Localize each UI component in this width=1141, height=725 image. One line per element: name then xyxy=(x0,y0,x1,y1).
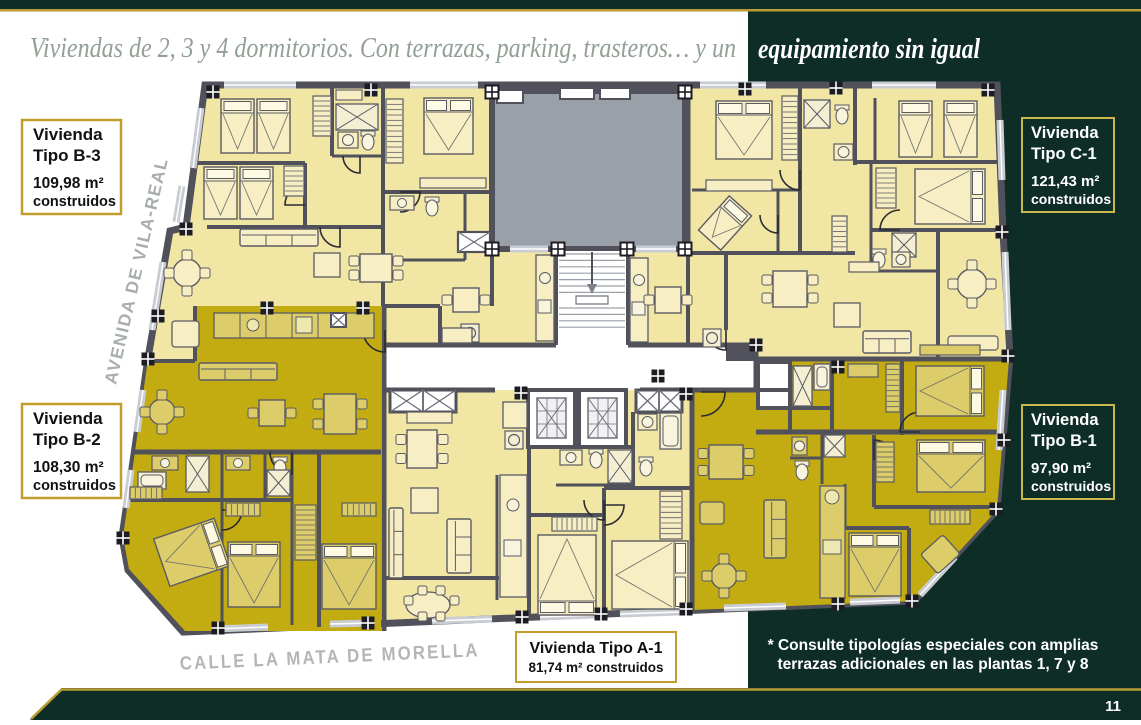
svg-text:97,90 m²: 97,90 m² xyxy=(1031,460,1091,477)
svg-text:equipamiento sin igual: equipamiento sin igual xyxy=(758,34,980,65)
svg-text:11: 11 xyxy=(1105,698,1121,715)
svg-text:terrazas adicionales en las pl: terrazas adicionales en las plantas 1, 7… xyxy=(777,656,1088,673)
svg-text:* Consulte tipologías especial: * Consulte tipologías especiales con amp… xyxy=(768,637,1099,654)
svg-text:construidos: construidos xyxy=(33,478,116,494)
svg-text:construidos: construidos xyxy=(1031,478,1111,494)
svg-text:Vivienda: Vivienda xyxy=(33,409,103,428)
svg-text:Vivienda: Vivienda xyxy=(33,125,103,144)
svg-text:108,30 m²: 108,30 m² xyxy=(33,459,104,476)
svg-text:Tipo B-3: Tipo B-3 xyxy=(33,146,101,165)
svg-text:81,74 m² construidos: 81,74 m² construidos xyxy=(528,660,663,675)
svg-text:Vivienda Tipo A-1: Vivienda Tipo A-1 xyxy=(529,640,662,657)
svg-text:Tipo B-1: Tipo B-1 xyxy=(1031,432,1097,450)
svg-text:construidos: construidos xyxy=(33,194,116,210)
svg-text:Vivienda: Vivienda xyxy=(1031,411,1099,429)
svg-text:109,98 m²: 109,98 m² xyxy=(33,175,104,192)
svg-text:Viviendas de 2, 3 y 4 dormitor: Viviendas de 2, 3 y 4 dormitorios. Con t… xyxy=(30,32,736,64)
svg-text:construidos: construidos xyxy=(1031,191,1111,207)
svg-text:Tipo C-1: Tipo C-1 xyxy=(1031,145,1097,163)
svg-text:Tipo B-2: Tipo B-2 xyxy=(33,430,101,449)
svg-text:Vivienda: Vivienda xyxy=(1031,124,1099,142)
svg-text:121,43 m²: 121,43 m² xyxy=(1031,173,1099,190)
